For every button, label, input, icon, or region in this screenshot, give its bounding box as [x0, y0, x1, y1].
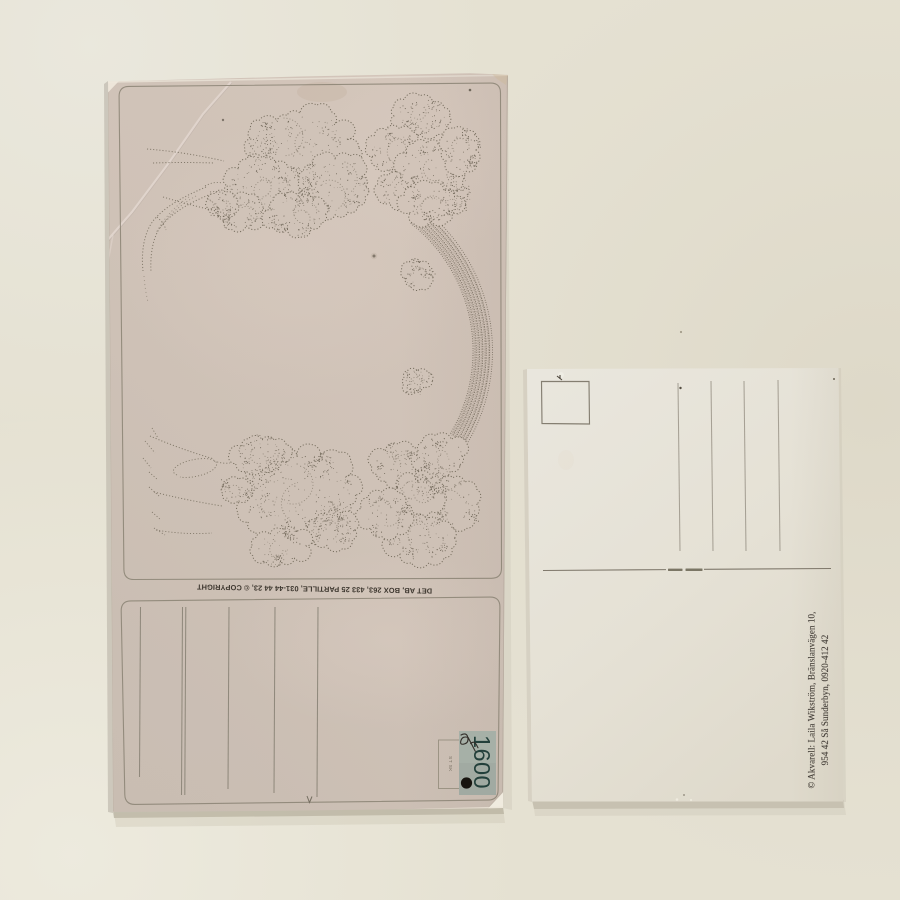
svg-text:© Akvarell: Laila Wikström, Br: © Akvarell: Laila Wikström, Bränslanväge… [807, 611, 817, 788]
svg-text:954 42 Så Sunderbyn, 0920-412: 954 42 Så Sunderbyn, 0920-412 42 [820, 635, 830, 766]
svg-text:1600: 1600 [469, 735, 495, 789]
svg-text:ST SK: ST SK [448, 756, 453, 772]
